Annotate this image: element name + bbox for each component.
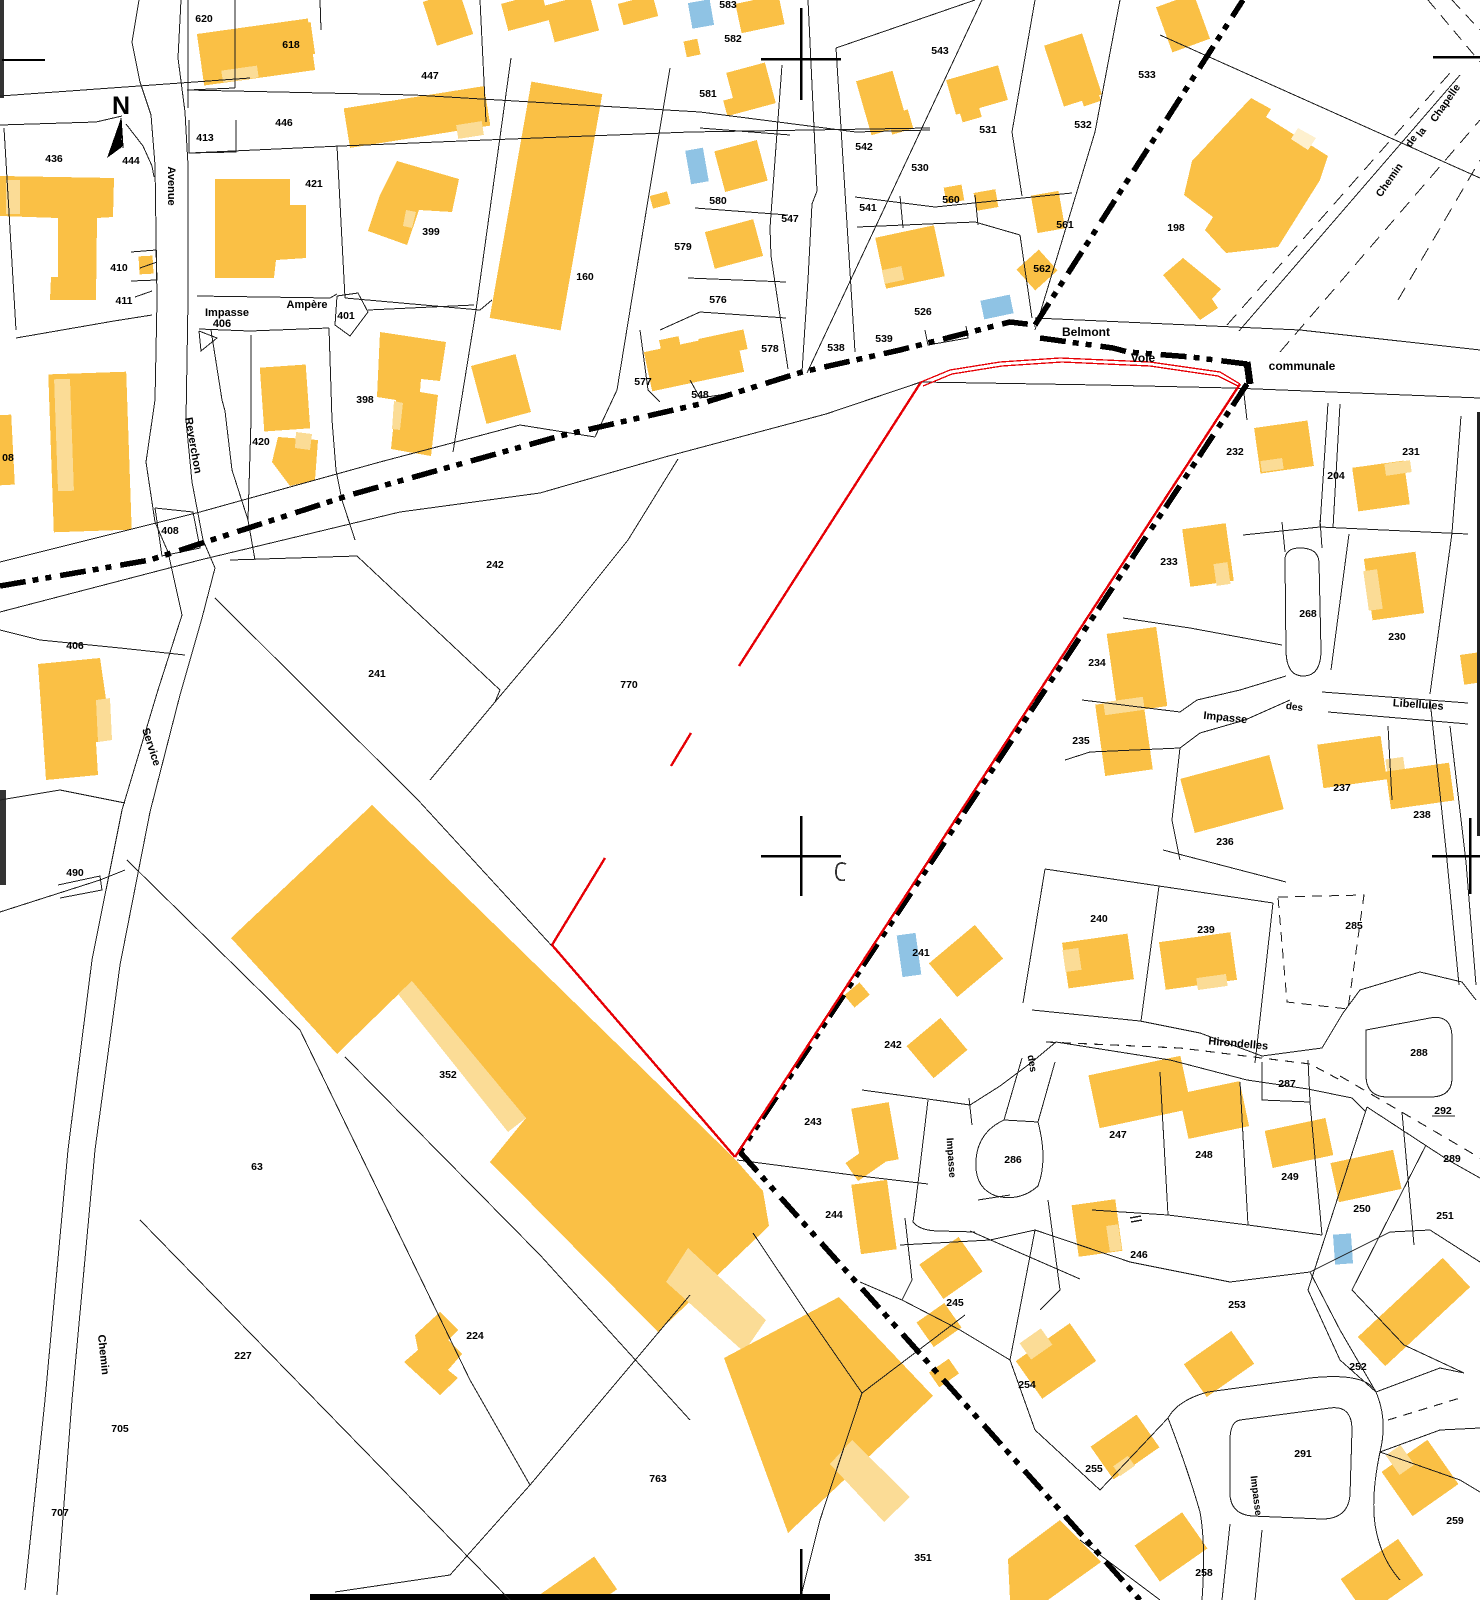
svg-text:231: 231: [1402, 446, 1420, 458]
svg-text:240: 240: [1090, 913, 1108, 925]
svg-text:620: 620: [195, 13, 213, 25]
svg-text:770: 770: [620, 679, 638, 691]
svg-text:408: 408: [161, 525, 179, 537]
svg-text:707: 707: [51, 1507, 69, 1519]
svg-text:583: 583: [719, 0, 737, 11]
svg-text:245: 245: [946, 1297, 964, 1309]
svg-text:410: 410: [110, 262, 128, 274]
svg-text:580: 580: [709, 195, 727, 207]
svg-text:577: 577: [634, 376, 652, 388]
svg-text:242: 242: [884, 1039, 902, 1051]
svg-text:Impasse: Impasse: [1248, 1475, 1264, 1517]
svg-text:244: 244: [825, 1209, 843, 1221]
svg-text:241: 241: [912, 947, 930, 959]
svg-text:289: 289: [1443, 1153, 1461, 1165]
svg-text:581: 581: [699, 88, 717, 100]
svg-text:237: 237: [1333, 782, 1351, 794]
svg-text:08: 08: [2, 452, 14, 464]
svg-text:Chapelle: Chapelle: [1428, 82, 1463, 125]
svg-text:254: 254: [1018, 1379, 1036, 1391]
svg-text:Impasse: Impasse: [1203, 710, 1248, 727]
svg-text:63: 63: [251, 1161, 263, 1173]
svg-text:Voie: Voie: [1131, 351, 1156, 365]
svg-text:Libellules: Libellules: [1392, 697, 1443, 713]
svg-text:490: 490: [66, 867, 84, 879]
svg-text:352: 352: [439, 1069, 457, 1081]
svg-text:444: 444: [122, 155, 140, 167]
svg-text:243: 243: [804, 1116, 822, 1128]
svg-text:Service: Service: [139, 727, 163, 768]
svg-text:543: 543: [931, 45, 949, 57]
svg-text:des: des: [1025, 1054, 1039, 1073]
svg-text:398: 398: [356, 394, 374, 406]
svg-text:238: 238: [1413, 809, 1431, 821]
svg-text:705: 705: [111, 1423, 129, 1435]
svg-text:249: 249: [1281, 1171, 1299, 1183]
svg-text:Chemin: Chemin: [1374, 161, 1406, 199]
svg-text:411: 411: [116, 295, 133, 307]
svg-text:548: 548: [691, 389, 709, 401]
svg-text:526: 526: [914, 306, 932, 318]
svg-text:560: 560: [942, 194, 960, 206]
svg-text:351: 351: [914, 1552, 932, 1564]
svg-text:251: 251: [1436, 1210, 1454, 1222]
svg-text:539: 539: [875, 333, 893, 345]
svg-text:291: 291: [1294, 1448, 1312, 1460]
svg-text:241: 241: [368, 668, 386, 680]
svg-text:420: 420: [252, 436, 270, 448]
svg-text:Avenue: Avenue: [165, 166, 177, 205]
svg-text:406: 406: [66, 640, 84, 652]
svg-text:562: 562: [1033, 263, 1051, 275]
svg-text:239: 239: [1197, 924, 1215, 936]
svg-text:292: 292: [1434, 1105, 1452, 1117]
svg-text:447: 447: [421, 70, 439, 82]
svg-text:258: 258: [1195, 1567, 1213, 1579]
svg-text:532: 532: [1074, 119, 1092, 131]
svg-text:288: 288: [1410, 1047, 1428, 1059]
svg-text:242: 242: [486, 559, 504, 571]
svg-text:436: 436: [45, 153, 63, 165]
svg-text:287: 287: [1278, 1078, 1296, 1090]
svg-text:618: 618: [282, 39, 300, 51]
svg-text:246: 246: [1130, 1249, 1148, 1261]
svg-text:763: 763: [649, 1473, 667, 1485]
svg-text:224: 224: [466, 1330, 484, 1342]
svg-text:542: 542: [855, 141, 873, 153]
svg-text:248: 248: [1195, 1149, 1213, 1161]
svg-text:Hirondelles: Hirondelles: [1208, 1035, 1269, 1052]
svg-text:582: 582: [724, 33, 742, 45]
svg-text:446: 446: [275, 117, 293, 129]
svg-text:547: 547: [781, 213, 799, 225]
svg-text:247: 247: [1109, 1129, 1127, 1141]
svg-text:252: 252: [1349, 1361, 1367, 1373]
svg-text:des: des: [1285, 701, 1304, 714]
svg-text:250: 250: [1353, 1203, 1371, 1215]
svg-text:Reverchon: Reverchon: [182, 416, 204, 474]
svg-text:578: 578: [761, 343, 779, 355]
svg-text:533: 533: [1138, 69, 1156, 81]
svg-text:253: 253: [1228, 1299, 1246, 1311]
svg-text:561: 561: [1056, 219, 1074, 231]
svg-text:399: 399: [422, 226, 440, 238]
svg-text:401: 401: [337, 310, 355, 322]
svg-text:204: 204: [1327, 470, 1345, 482]
svg-text:235: 235: [1072, 735, 1090, 747]
svg-text:286: 286: [1004, 1154, 1022, 1166]
svg-text:233: 233: [1160, 556, 1178, 568]
svg-text:Belmont: Belmont: [1062, 325, 1110, 339]
svg-text:259: 259: [1446, 1515, 1464, 1527]
svg-text:531: 531: [979, 124, 997, 136]
svg-text:communale: communale: [1269, 359, 1336, 373]
svg-text:530: 530: [911, 162, 929, 174]
svg-text:255: 255: [1085, 1463, 1103, 1475]
svg-text:406: 406: [213, 318, 231, 330]
svg-text:576: 576: [709, 294, 727, 306]
svg-text:285: 285: [1345, 920, 1363, 932]
svg-text:N: N: [112, 92, 130, 120]
svg-text:541: 541: [859, 202, 877, 214]
svg-text:160: 160: [576, 271, 594, 283]
svg-text:230: 230: [1388, 631, 1406, 643]
svg-text:227: 227: [234, 1350, 252, 1362]
svg-text:Impasse: Impasse: [944, 1137, 958, 1178]
svg-text:579: 579: [674, 241, 692, 253]
svg-text:538: 538: [827, 342, 845, 354]
svg-text:232: 232: [1226, 446, 1244, 458]
svg-text:234: 234: [1088, 657, 1106, 669]
svg-text:421: 421: [305, 178, 323, 190]
svg-text:268: 268: [1299, 608, 1317, 620]
svg-text:198: 198: [1167, 222, 1185, 234]
svg-text:Ampère: Ampère: [287, 299, 328, 311]
svg-text:413: 413: [196, 132, 214, 144]
svg-text:Chemin: Chemin: [95, 1334, 111, 1376]
svg-text:236: 236: [1216, 836, 1234, 848]
